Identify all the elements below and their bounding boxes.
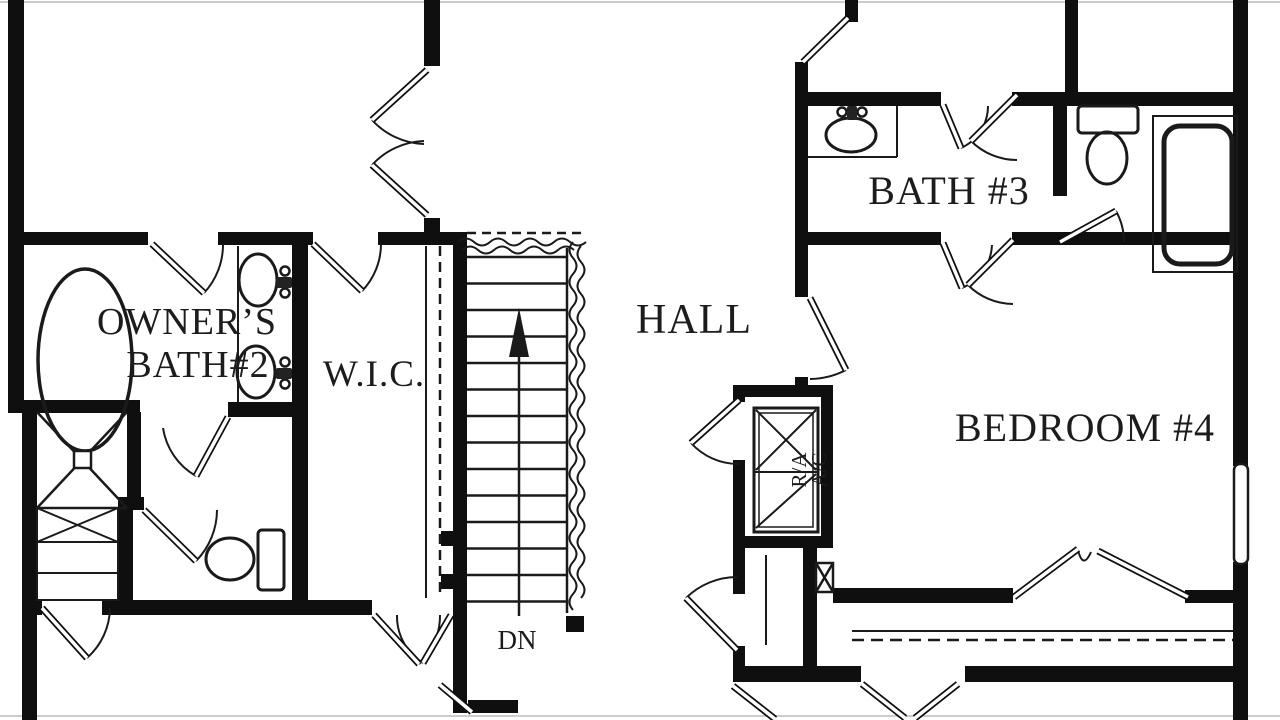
door-swing-icon (313, 244, 381, 291)
vanity-sink-icon (239, 254, 292, 306)
door-swing-icon (971, 95, 1017, 160)
door-swing-icon (691, 400, 739, 464)
sink-icon (808, 106, 897, 157)
room-label-wic: W.I.C. (323, 354, 425, 395)
stairs-down-label: DN (498, 625, 537, 655)
door-swing-icon (152, 244, 223, 293)
door-swing-icon (163, 417, 228, 476)
double-door-icon (374, 615, 451, 664)
stairs-direction-arrow (509, 308, 529, 616)
floor-plan-drawing: OWNER’S BATH#2 W.I.C. HALL BATH #3 BEDRO… (0, 0, 1280, 720)
top-edge-line (0, 1, 1280, 3)
floor-plan: OWNER’S BATH#2 W.I.C. HALL BATH #3 BEDRO… (0, 0, 1280, 720)
door-swing-icon (42, 608, 110, 658)
door-swing-icon (803, 18, 848, 62)
room-label-bath3: BATH #3 (868, 168, 1029, 213)
linen-shelves (37, 508, 118, 600)
stair-break-wavy-line (458, 239, 586, 246)
room-label-bedroom4: BEDROOM #4 (955, 405, 1215, 450)
chase-marker-icon (816, 563, 833, 592)
double-door-icon (1014, 549, 1188, 597)
staircase (458, 233, 586, 616)
garden-tub-icon (38, 269, 132, 451)
door-swing-icon (686, 577, 737, 650)
stair-break-wavy-line (570, 242, 577, 610)
wall-jamb (441, 531, 456, 546)
door-swing-icon (810, 298, 846, 379)
double-door-icon (372, 70, 427, 215)
stair-break-wavy-line (462, 247, 574, 254)
hvac-label-ac: A/C (807, 452, 831, 487)
bathtub-icon (1153, 116, 1237, 272)
room-label-hall: HALL (636, 297, 752, 343)
shower-icon (37, 412, 127, 508)
room-label-owners-bath-line2: BATH#2 (126, 344, 269, 386)
toilet-icon (206, 530, 284, 590)
wall-jamb (441, 574, 456, 589)
window (1234, 464, 1248, 564)
door-swing-icon (733, 686, 775, 719)
door-swing-icon (968, 240, 1013, 304)
bottom-edge-line (0, 715, 1280, 717)
room-label-owners-bath-line1: OWNER’S (97, 301, 277, 343)
toilet-icon (1078, 106, 1138, 184)
stair-break-wavy-line (578, 246, 585, 598)
double-door-icon (862, 684, 958, 718)
